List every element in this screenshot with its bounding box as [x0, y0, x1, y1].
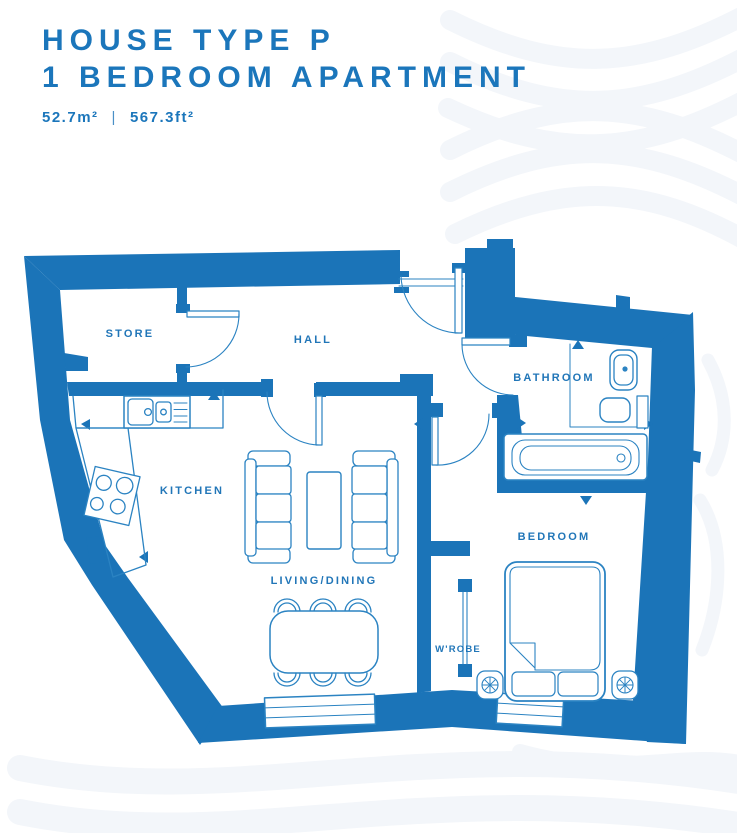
sofa-right	[352, 451, 398, 563]
hinge-living-door	[314, 383, 326, 397]
bed	[505, 562, 605, 701]
wall-wardrobe-stub	[431, 541, 470, 556]
area-imperial: 567.3ft²	[130, 109, 195, 126]
wall-divider-block	[400, 374, 433, 396]
dining-chairs-top	[274, 599, 371, 612]
title-line-2: 1 BEDROOM APARTMENT	[42, 59, 531, 96]
area-separator: |	[112, 109, 117, 126]
hinge-store-door-bottom	[176, 364, 190, 373]
store-door-leaf	[187, 311, 239, 317]
bathroom-toilet	[600, 396, 648, 428]
living-window	[265, 694, 376, 728]
floorplan-page: HOUSE TYPE P 1 BEDROOM APARTMENT 52.7m²|…	[0, 0, 737, 833]
bathroom-basin	[610, 350, 637, 390]
store-door	[186, 311, 239, 367]
wall-living-bedroom-divider	[417, 396, 431, 693]
wall-store-step	[64, 353, 88, 371]
bathroom-bath	[504, 434, 647, 480]
hinge-bathroom-door	[509, 335, 527, 347]
coffee-table	[307, 472, 341, 549]
room-label-bathroom: BATHROOM	[513, 372, 595, 384]
wall-top	[24, 250, 400, 290]
bedroom-door-leaf	[432, 417, 438, 465]
room-label-hall: HALL	[294, 334, 332, 346]
page-title: HOUSE TYPE P 1 BEDROOM APARTMENT	[42, 22, 531, 96]
wall-entry-column	[465, 248, 515, 341]
wall-right	[633, 312, 695, 744]
bedroom-door	[432, 414, 489, 465]
wall-entry-stub	[487, 239, 513, 248]
entry-door-leaf	[455, 268, 462, 333]
store-door-arc	[186, 314, 239, 367]
sofa-left	[245, 451, 291, 563]
plan-header: HOUSE TYPE P 1 BEDROOM APARTMENT 52.7m²|…	[42, 22, 531, 126]
bathroom-door-leaf	[462, 338, 510, 345]
wall-hall-south-east	[316, 382, 400, 396]
dining-chairs-bottom	[274, 673, 371, 686]
bedside-table-left	[477, 671, 503, 699]
entry-door-arc	[401, 276, 459, 333]
living-door-leaf	[316, 396, 322, 445]
wall-diagonal-stub	[616, 295, 630, 310]
title-line-1: HOUSE TYPE P	[42, 22, 531, 59]
kitchen-sink	[124, 396, 190, 428]
entry-door	[399, 268, 463, 333]
room-label-kitchen: KITCHEN	[160, 485, 224, 497]
entry-jamb-mark-bottom	[394, 287, 409, 293]
entry-door-head	[399, 279, 463, 286]
room-label-bedroom: BEDROOM	[518, 531, 591, 543]
bathroom-door-arc	[462, 344, 513, 395]
room-label-store: STORE	[106, 328, 155, 340]
marker-corridor-arrow	[517, 417, 526, 429]
wardrobe-track-end-bottom	[458, 664, 472, 677]
kitchen-hob	[84, 466, 140, 525]
bedside-table-right	[612, 671, 638, 699]
marker-left-wall-arrow-lower	[139, 551, 148, 563]
area-metric: 52.7m²	[42, 109, 99, 126]
area-info: 52.7m²|567.3ft²	[42, 109, 531, 126]
bathroom-door	[462, 338, 513, 395]
bedroom-door-arc	[435, 414, 489, 465]
marker-bath-arrow-lower	[580, 496, 592, 505]
room-label-living-dining: LIVING/DINING	[271, 575, 378, 587]
wardrobe-track-end-top	[458, 579, 472, 592]
living-door-arc	[267, 392, 319, 445]
wall-hall-south-west	[67, 382, 268, 396]
jamb-bedroom-door-right	[492, 403, 518, 418]
living-door	[267, 392, 322, 445]
room-label-wardrobe: W'ROBE	[435, 644, 481, 655]
dining-table	[270, 611, 378, 673]
hinge-bedroom-door	[428, 403, 443, 417]
